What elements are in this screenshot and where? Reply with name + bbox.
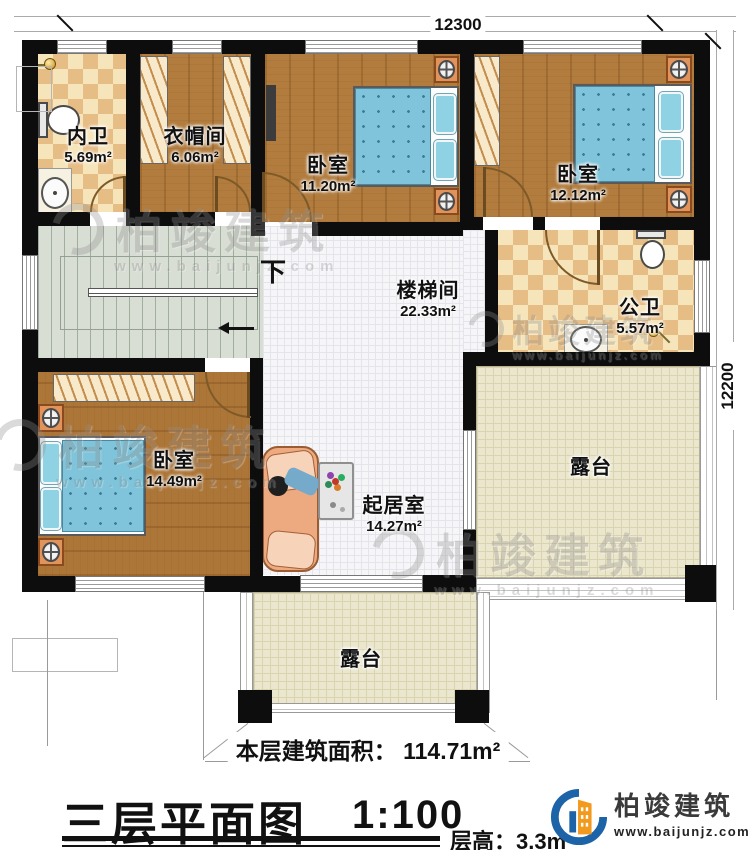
floor-area-label: 本层建筑面积： xyxy=(236,738,397,764)
nightstand xyxy=(434,188,459,215)
door-leaf xyxy=(597,230,600,285)
watermark-subtext: www.baijunjz.com xyxy=(512,348,664,362)
nightstand xyxy=(434,56,459,83)
plant-icon xyxy=(670,60,688,79)
watermark-logo-icon xyxy=(42,193,113,264)
window xyxy=(523,40,642,54)
room-label-bedroom-bottom-left: 卧室 14.49m² xyxy=(146,444,202,490)
watermark-logo-icon xyxy=(461,304,510,353)
watermark-logo-icon xyxy=(0,409,56,480)
wall xyxy=(463,366,476,430)
outline-line xyxy=(716,610,717,700)
wall xyxy=(205,576,300,592)
plant-icon xyxy=(42,542,60,562)
nightstand xyxy=(38,538,64,566)
outline-line xyxy=(47,600,48,746)
nightstand xyxy=(666,56,692,83)
sliding-door xyxy=(463,430,476,530)
nightstand xyxy=(666,186,692,213)
closet xyxy=(53,374,195,402)
watermark: 柏竣建筑 www.baijunjz.com xyxy=(0,412,281,491)
watermark-text: 柏竣建筑 xyxy=(436,520,652,586)
stair-direction-arrow xyxy=(228,327,254,330)
table-decor xyxy=(330,502,336,508)
railing xyxy=(240,703,490,713)
window xyxy=(305,40,418,54)
wall xyxy=(126,54,140,212)
window xyxy=(694,260,710,333)
window xyxy=(57,40,107,54)
wardrobe xyxy=(474,56,500,166)
company-website: www.baijunjz.com xyxy=(614,824,750,839)
outline-box xyxy=(12,638,118,672)
column xyxy=(455,690,489,723)
flowers-icon xyxy=(332,478,339,485)
company-name: 柏竣建筑 xyxy=(614,792,734,822)
stair-arrow-head-icon xyxy=(218,322,229,334)
bed-mattress xyxy=(355,88,431,185)
dimension-top-value: 12300 xyxy=(430,15,485,35)
coffee-table xyxy=(318,462,354,520)
sofa-cushion xyxy=(265,530,317,571)
floor-area-note: 本层建筑面积： 114.71m² xyxy=(228,732,509,766)
stair-handrail xyxy=(88,288,258,297)
bed-pillow xyxy=(434,94,456,134)
room-label-gongwei: 公卫 5.57m² xyxy=(616,291,664,337)
drawing-scale: 1:100 xyxy=(352,793,464,838)
room-label-terrace-right: 露台 xyxy=(570,451,612,480)
dimension-line-top xyxy=(14,16,736,32)
floor-plan-sheet: 柏竣建筑 www.baijunjz.com 柏竣建筑 www.baijunjz.… xyxy=(0,0,750,850)
wardrobe xyxy=(223,56,251,164)
bed-pillow xyxy=(659,138,683,178)
bed-pillow xyxy=(434,140,456,180)
plant-icon xyxy=(438,192,455,211)
dimension-line-right xyxy=(716,30,734,610)
room-label-yimaojian: 衣帽间 6.06m² xyxy=(164,120,227,166)
floor-height-note: 层高：3.3m xyxy=(450,824,566,850)
room-label-stairwell: 楼梯间 22.33m² xyxy=(397,274,460,320)
window xyxy=(22,255,38,330)
bed-pillow xyxy=(659,92,683,132)
dimension-right-value: 12200 xyxy=(718,342,738,430)
plant-icon xyxy=(438,60,455,79)
window xyxy=(172,40,222,54)
column xyxy=(238,690,272,723)
wall xyxy=(533,217,545,230)
outline-box xyxy=(16,66,52,112)
toilet-tank xyxy=(636,230,666,239)
company-logo: 柏竣建筑 www.baijunjz.com xyxy=(550,786,746,848)
room-label-bedroom-top-middle: 卧室 11.20m² xyxy=(300,149,355,195)
toilet-bowl xyxy=(640,240,665,269)
room-label-living: 起居室 14.27m² xyxy=(363,489,426,535)
company-logo-icon xyxy=(550,788,608,846)
wall xyxy=(460,54,474,230)
room-label-neiwei: 内卫 5.69m² xyxy=(64,120,112,166)
door-leaf xyxy=(483,167,486,217)
outline-line xyxy=(203,592,204,760)
wall xyxy=(600,217,694,230)
column xyxy=(685,565,718,602)
title-underline xyxy=(62,845,440,847)
room-label-terrace-bottom: 露台 xyxy=(340,643,382,672)
window xyxy=(75,576,205,592)
watermark-subtext: www.baijunjz.com xyxy=(434,582,659,599)
wall xyxy=(22,576,75,592)
watermark-subtext: www.baijunjz.com xyxy=(114,258,339,275)
plant-icon xyxy=(670,190,688,209)
floor-height-label: 层高： xyxy=(450,829,516,850)
table-decor xyxy=(340,507,345,512)
tv-icon xyxy=(266,85,276,141)
wall xyxy=(460,217,483,230)
room-label-bedroom-top-right: 卧室 12.12m² xyxy=(550,158,606,204)
stair-down-label: 下 xyxy=(260,252,286,289)
watermark: 柏竣建筑 www.baijunjz.com xyxy=(52,196,339,275)
watermark-text: 柏竣建筑 xyxy=(116,196,332,262)
wall xyxy=(22,358,205,372)
bed-pillow xyxy=(41,488,61,530)
floor-area-value: 114.71m² xyxy=(403,738,500,764)
